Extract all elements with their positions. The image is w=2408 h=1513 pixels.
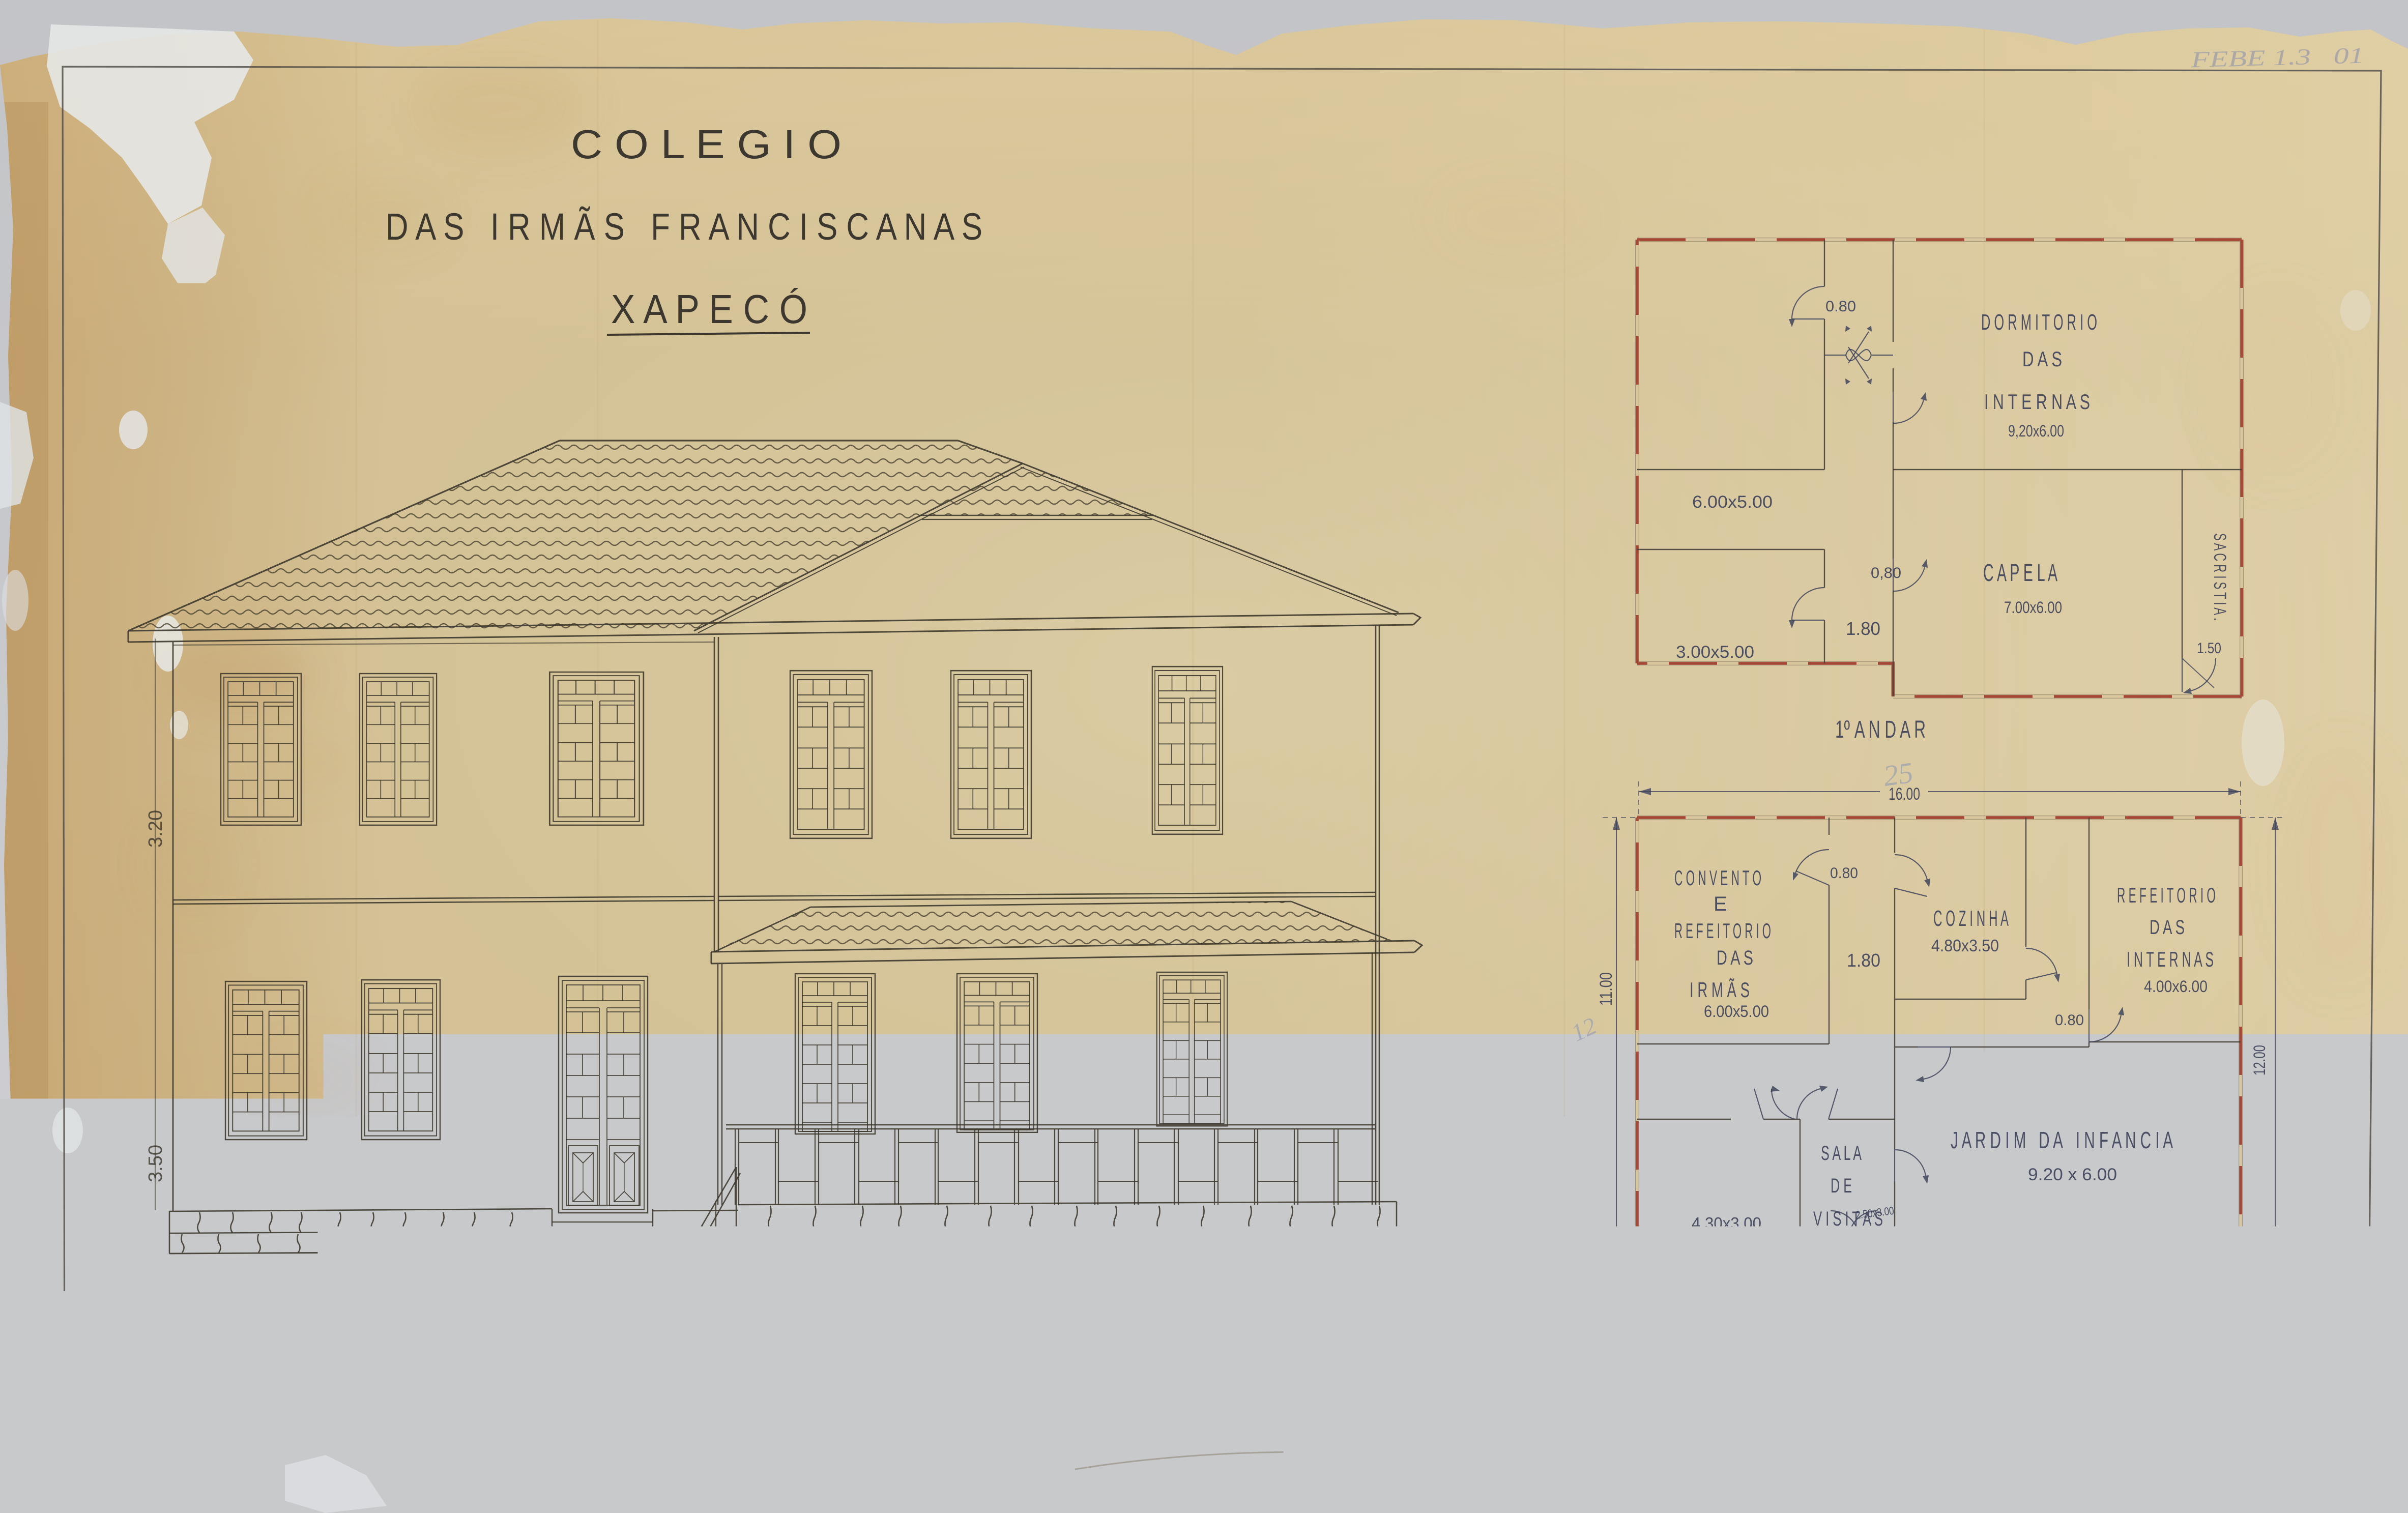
svg-text:1.50: 1.50	[2197, 640, 2221, 657]
svg-text:ESC. 1:50: ESC. 1:50	[631, 1368, 715, 1393]
svg-text:I N T E R N A S: I N T E R N A S	[2127, 947, 2214, 971]
svg-text:R E F E I T O R I O: R E F E I T O R I O	[1674, 919, 1771, 943]
svg-text:J A R D I M D A I N F A N: J A R D I M D A I N F A N C I A	[1951, 1127, 2173, 1153]
svg-text:S A C R I S T I A .: S A C R I S T I A .	[2210, 533, 2229, 621]
svg-text:1.10x2.00: 1.10x2.00	[1943, 1286, 1989, 1302]
svg-text:P A V I M E N T O T E R R E: P A V I M E N T O T E R R E O	[1809, 1381, 2073, 1410]
svg-text:D A S: D A S	[2022, 347, 2062, 371]
svg-text:12.00: 12.00	[2250, 1045, 2269, 1075]
svg-text:9,20x6.00: 9,20x6.00	[2008, 422, 2064, 440]
svg-text:F A C H A D A P R I N C I P: F A C H A D A P R I N C I P A L	[590, 1294, 904, 1327]
svg-text:D A S I R M Ã S F R A N C: D A S I R M Ã S F R A N C I S C A N A S	[386, 206, 982, 248]
svg-text:S A L A: S A L A	[1821, 1142, 1862, 1165]
svg-text:4.00x6.00: 4.00x6.00	[2144, 977, 2208, 996]
svg-text:C A P E L A: C A P E L A	[1983, 560, 2057, 587]
svg-text:1.80: 1.80	[1847, 950, 1880, 971]
svg-text:D O R M I T O R I O: D O R M I T O R I O	[1981, 310, 2097, 335]
svg-text:R E F E I T O R I O: R E F E I T O R I O	[2117, 883, 2216, 907]
svg-text:C O L E G I O: C O L E G I O	[571, 122, 842, 167]
svg-text:1.10x2.00: 1.10x2.00	[1655, 1254, 1715, 1271]
svg-text:0.80: 0.80	[1830, 865, 1858, 882]
svg-text:D E: D E	[1831, 1175, 1852, 1197]
svg-text:6.00x5.00: 6.00x5.00	[1704, 1002, 1769, 1021]
svg-text:FEBE 1.3 01: FEBE 1.3 01	[2190, 43, 2365, 72]
svg-text:25: 25	[1881, 755, 1915, 792]
svg-text:C O N V E N T O: C O N V E N T O	[1674, 866, 1761, 890]
svg-text:0.80: 0.80	[1825, 298, 1856, 315]
svg-text:I N T E R N A S: I N T E R N A S	[1984, 390, 2090, 414]
svg-text:3.50: 3.50	[145, 1145, 166, 1182]
svg-text:1.20x2.00: 1.20x2.00	[1835, 1255, 1877, 1271]
svg-text:E: E	[1714, 893, 1727, 915]
svg-text:0,80: 0,80	[1871, 565, 1901, 581]
svg-text:3.00x5.00: 3.00x5.00	[1676, 643, 1754, 662]
svg-text:C O Z I N H A: C O Z I N H A	[1933, 906, 2009, 931]
svg-text:3.20: 3.20	[145, 810, 166, 848]
svg-text:4.30x3.00: 4.30x3.00	[1692, 1214, 1761, 1233]
svg-text:P L A N T A: P L A N T A	[1844, 1416, 1987, 1446]
svg-text:11.00: 11.00	[1597, 972, 1616, 1006]
svg-text:7.00x6.00: 7.00x6.00	[2004, 598, 2062, 617]
svg-text:V A R A N D A: V A R A N D A	[1987, 1299, 2076, 1323]
svg-text:6.00x5.00: 6.00x5.00	[1692, 492, 1773, 512]
svg-text:ESC. 1:100: ESC. 1:100	[2152, 1402, 2239, 1426]
svg-text:9.20 x 6.00: 9.20 x 6.00	[2028, 1165, 2117, 1184]
svg-text:1.80: 1.80	[1846, 618, 1880, 639]
svg-text:0.80: 0.80	[2055, 1012, 2084, 1029]
svg-text:1º A N D A R: 1º A N D A R	[1835, 716, 1926, 743]
svg-text:8.80x1.50: 8.80x1.50	[2096, 1307, 2148, 1323]
svg-text:4.80x3.50: 4.80x3.50	[1931, 936, 1999, 955]
svg-text:X A P E C Ó: X A P E C Ó	[611, 286, 807, 332]
svg-text:I R M Ã S: I R M Ã S	[1690, 978, 1750, 1002]
svg-text:D A S: D A S	[1717, 947, 1753, 969]
svg-text:D A S: D A S	[2150, 916, 2185, 939]
